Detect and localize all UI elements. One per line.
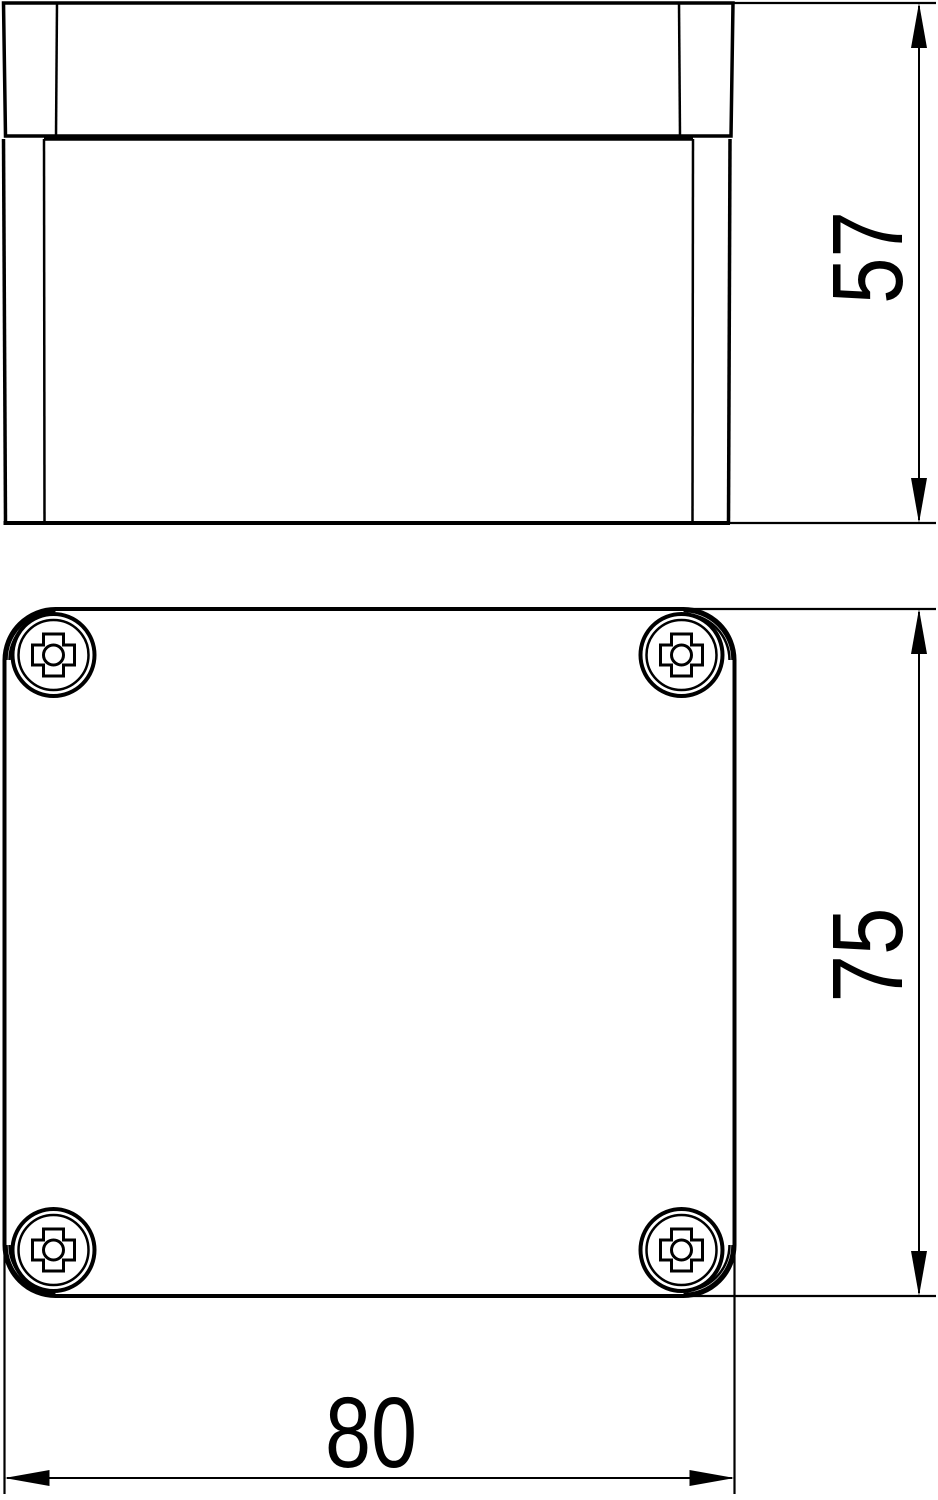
dimension-label-80: 80 xyxy=(325,1377,417,1489)
dimension-label-75: 75 xyxy=(812,908,924,1003)
screw-center-pivot xyxy=(44,1240,64,1260)
screw-center-pivot xyxy=(672,1240,692,1260)
arrowhead-left-icon xyxy=(5,1470,50,1486)
side-view-lid-corner-line-right xyxy=(679,3,680,136)
phillips-screw-icon-top-right xyxy=(641,614,723,696)
side-view-body-corner-line-right xyxy=(693,139,694,523)
arrowhead-up-icon xyxy=(911,3,927,48)
screw-center-pivot xyxy=(44,645,64,665)
drawing-canvas: 57 xyxy=(0,0,938,1500)
side-view-body-edge-left xyxy=(4,139,6,523)
top-view xyxy=(5,609,735,1296)
phillips-screw-icon-bottom-right xyxy=(641,1209,723,1291)
side-view-lid-corner-line-left xyxy=(56,3,57,136)
side-view-lid-outline xyxy=(4,3,734,136)
arrowhead-up-icon xyxy=(911,609,927,654)
arrowhead-down-icon xyxy=(911,478,927,523)
dimension-75: 75 xyxy=(683,609,936,1296)
arrowhead-right-icon xyxy=(690,1470,735,1486)
side-view xyxy=(4,3,734,523)
arrowhead-down-icon xyxy=(911,1251,927,1296)
screw-center-pivot xyxy=(672,645,692,665)
dimension-label-57: 57 xyxy=(812,211,924,304)
side-view-body-corner-line-left xyxy=(44,139,45,523)
phillips-screw-icon-top-left xyxy=(13,614,95,696)
top-view-lid-outline xyxy=(5,609,735,1296)
dimension-drawing: 57 xyxy=(0,0,938,1500)
phillips-screw-icon-bottom-left xyxy=(13,1209,95,1291)
dimension-80: 80 xyxy=(5,1245,735,1494)
dimension-57: 57 xyxy=(730,3,936,523)
side-view-body-edge-right xyxy=(729,139,731,523)
